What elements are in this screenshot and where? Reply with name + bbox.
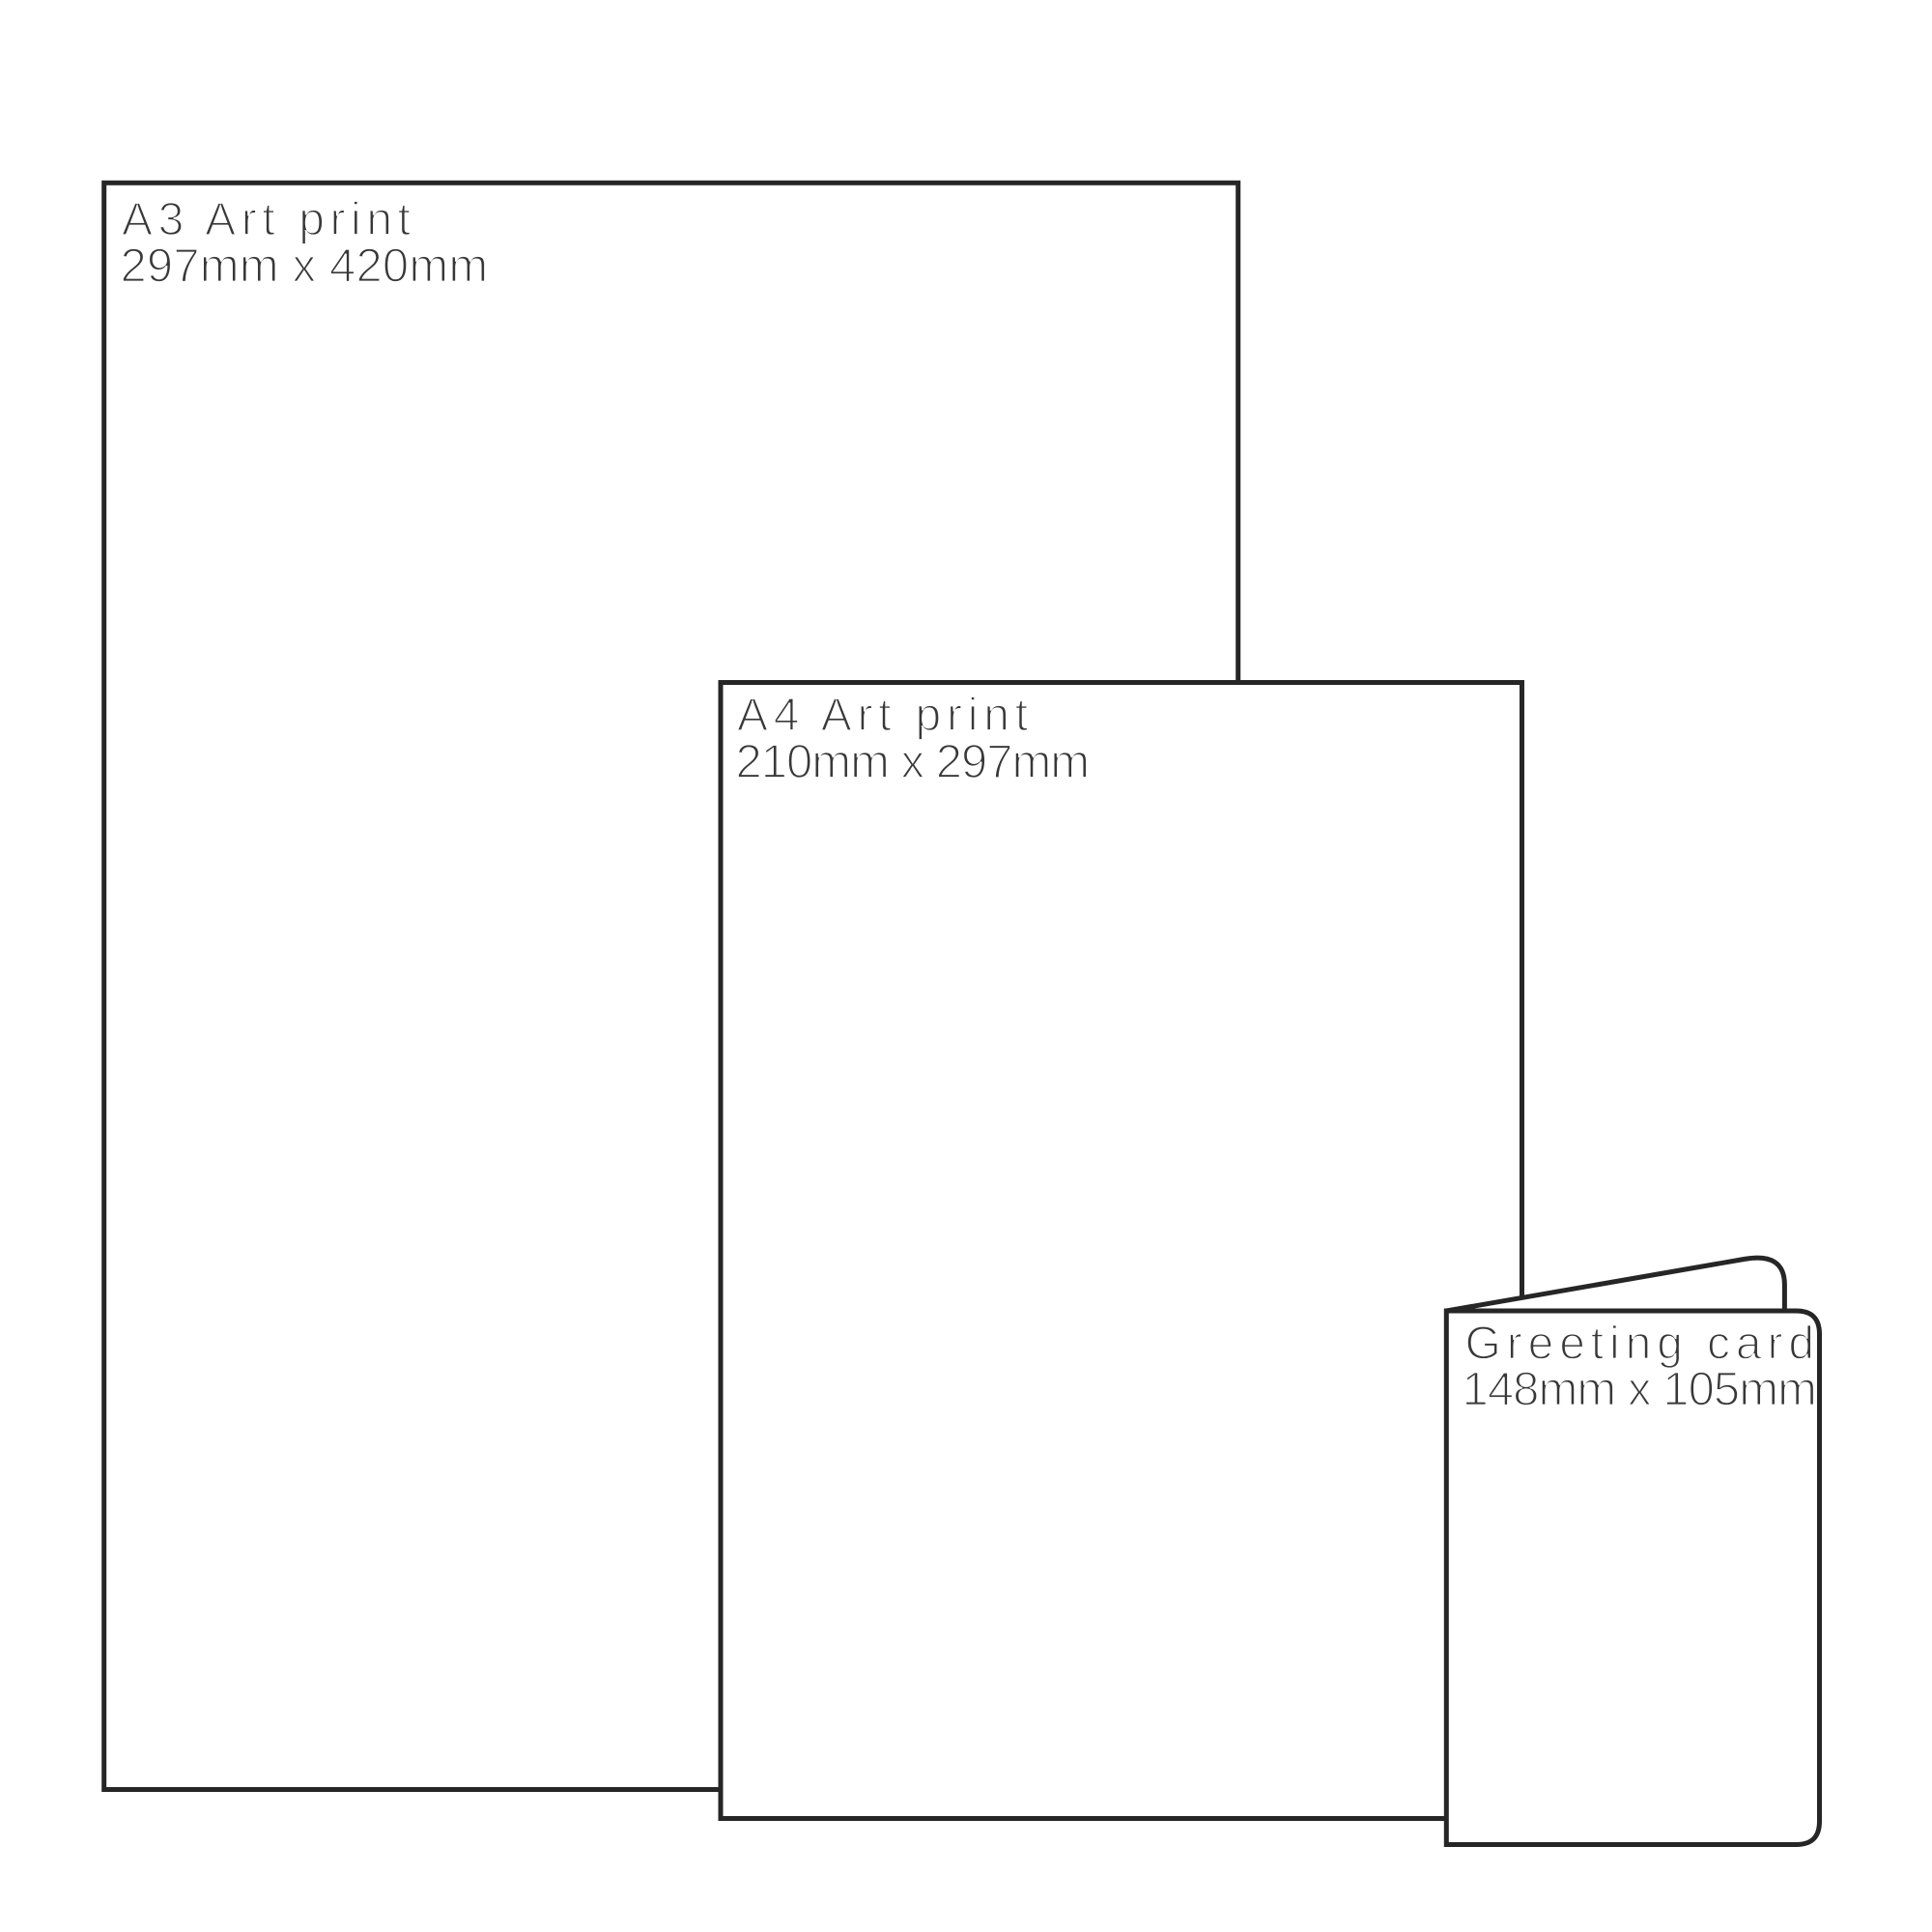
svg-text:A3 Art print: A3 Art print (122, 194, 416, 245)
svg-text:A4 Art print: A4 Art print (737, 690, 1034, 741)
svg-text:297mm x 420mm: 297mm x 420mm (121, 241, 489, 293)
svg-text:148mm x 105mm: 148mm x 105mm (1463, 1363, 1817, 1415)
svg-text:Greeting card: Greeting card (1465, 1319, 1821, 1370)
svg-text:210mm x 297mm: 210mm x 297mm (736, 736, 1090, 788)
